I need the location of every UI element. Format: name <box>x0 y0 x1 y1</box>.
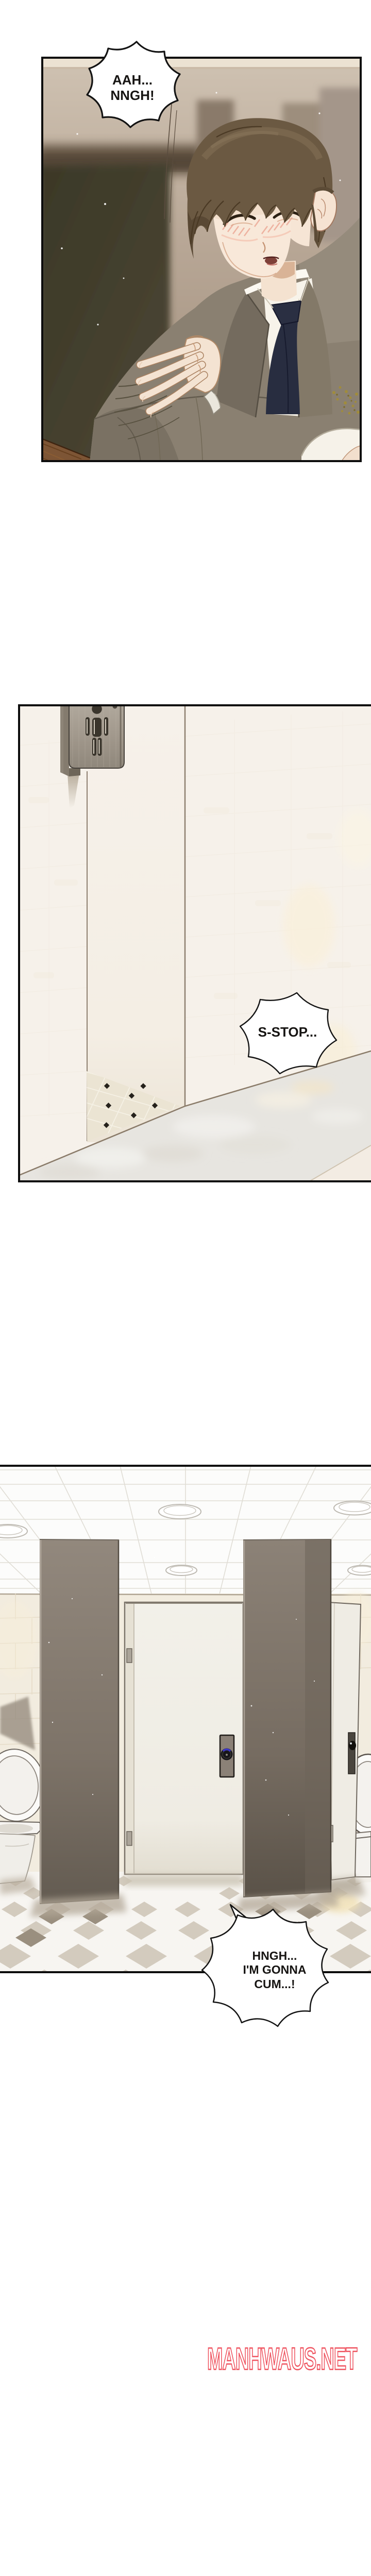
svg-text:S-STOP...: S-STOP... <box>258 1024 317 1040</box>
svg-text:AAH...: AAH... <box>112 72 153 88</box>
svg-text:I'M GONNA: I'M GONNA <box>243 1963 306 1976</box>
svg-text:CUM...!: CUM...! <box>254 1977 295 1991</box>
svg-text:NNGH!: NNGH! <box>110 88 154 103</box>
svg-text:HNGH...: HNGH... <box>252 1949 297 1962</box>
